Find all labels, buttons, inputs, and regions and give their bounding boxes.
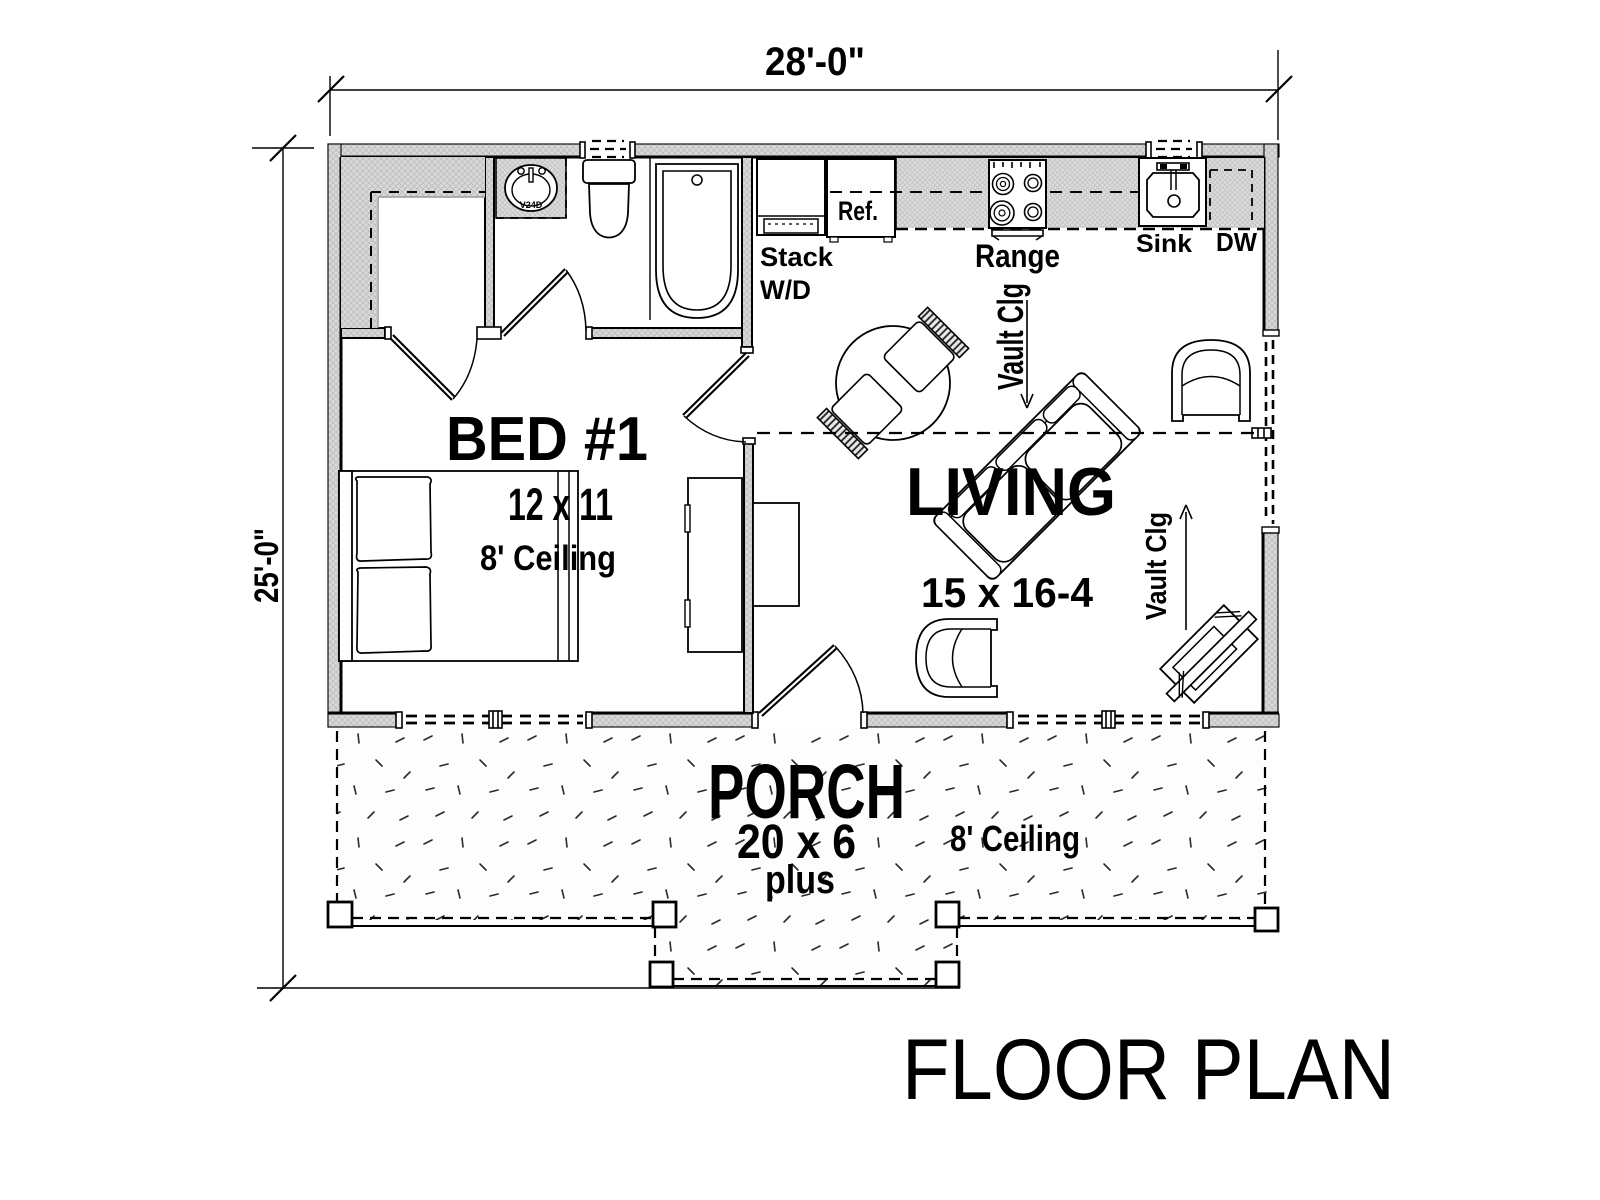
svg-text:V24D: V24D bbox=[520, 200, 543, 210]
svg-text:FLOOR PLAN: FLOOR PLAN bbox=[902, 1022, 1395, 1118]
svg-text:Stack: Stack bbox=[760, 242, 834, 272]
svg-text:25'-0": 25'-0" bbox=[248, 528, 286, 603]
svg-text:12 x 11: 12 x 11 bbox=[508, 479, 613, 530]
svg-text:Ref.: Ref. bbox=[838, 196, 878, 226]
svg-text:8' Ceiling: 8' Ceiling bbox=[480, 539, 616, 578]
svg-text:15 x 16-4: 15 x 16-4 bbox=[921, 569, 1094, 616]
svg-text:Sink: Sink bbox=[1136, 230, 1192, 258]
svg-text:Vault Clg: Vault Clg bbox=[1141, 512, 1173, 620]
svg-text:Vault Clg: Vault Clg bbox=[990, 283, 1031, 390]
svg-text:28'-0": 28'-0" bbox=[765, 40, 865, 84]
svg-text:W/D: W/D bbox=[760, 275, 811, 305]
svg-text:BED #1: BED #1 bbox=[446, 405, 648, 474]
svg-text:plus: plus bbox=[765, 858, 835, 902]
svg-text:LIVING: LIVING bbox=[906, 454, 1116, 530]
svg-text:DW: DW bbox=[1216, 227, 1257, 257]
svg-text:8' Ceiling: 8' Ceiling bbox=[950, 818, 1080, 859]
svg-text:Range: Range bbox=[975, 238, 1060, 274]
